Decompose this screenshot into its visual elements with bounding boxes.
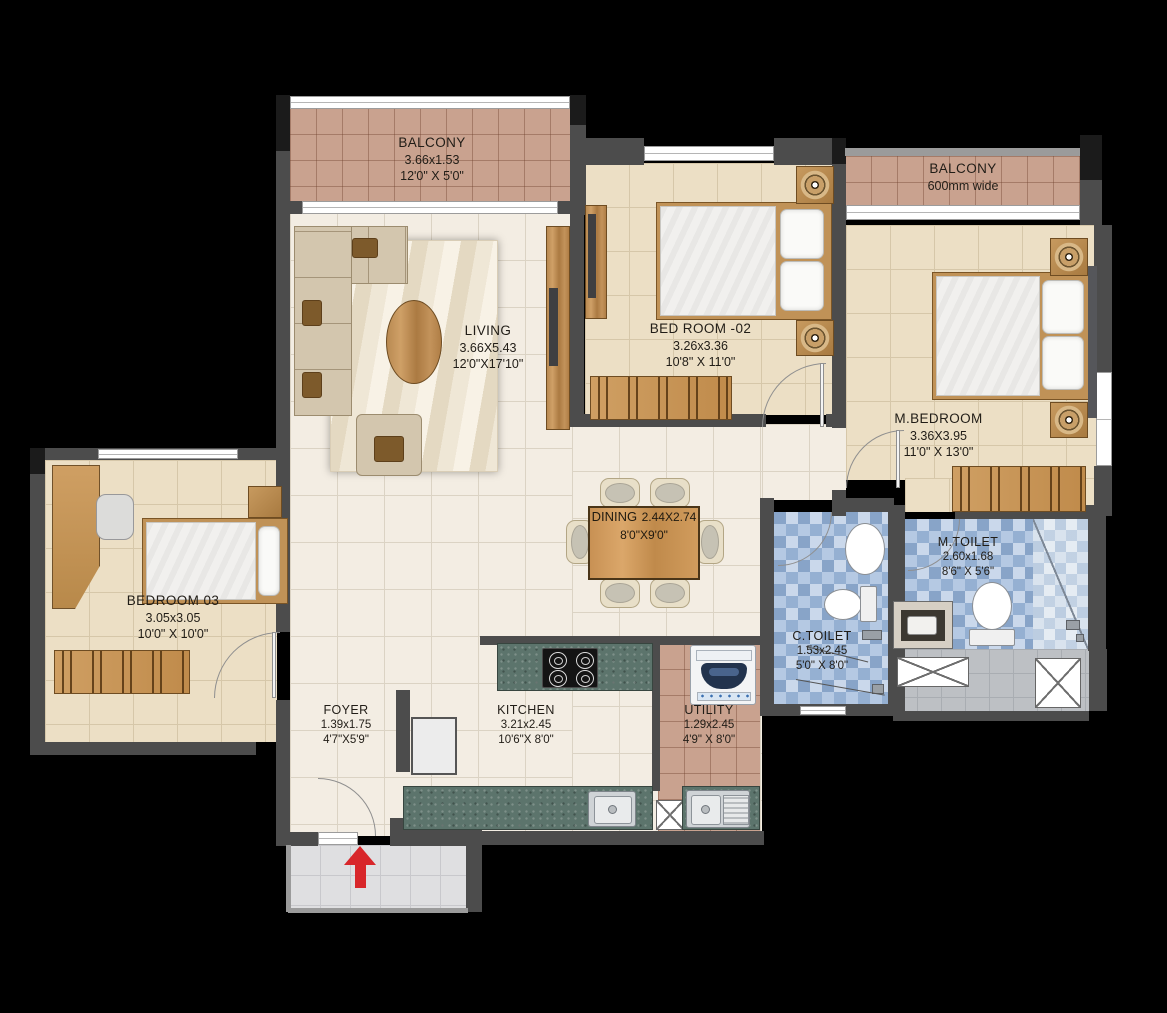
wall-segment [1080,180,1102,225]
sofa-cushion [302,300,322,326]
entry-arrow-head [344,846,376,865]
room-dim-ft: 12'0"X17'10" [398,356,578,372]
dining-table: DINING 2.44X2.74 8'0"X9'0" [588,506,700,580]
room-dim-ft: 10'8" X 11'0" [598,354,803,370]
room-dim-m: 3.26x3.36 [598,338,803,354]
balcony-top-right-label: BALCONY 600mm wide [858,160,1068,194]
dining-chair [650,578,690,608]
wardrobe-master [952,466,1086,512]
table-lamp [1051,239,1087,275]
wall-segment [1088,505,1106,651]
water-closet-tank [860,586,877,622]
room-name: KITCHEN [452,702,600,718]
wall-segment [276,213,290,460]
dining-dim-m: 2.44X2.74 [642,510,697,524]
wall-segment [832,138,846,164]
bed-pillow [780,261,824,311]
room-name: BALCONY [858,160,1068,178]
balcony-top-left-label: BALCONY 3.66x1.53 12'0" X 5'0" [332,134,532,184]
bed-duvet [936,276,1040,396]
room-dim-m: 1.53x2.45 [766,644,878,659]
room-dim-ft: 5'0" X 8'0" [766,659,878,674]
room-dim-ft: 8'6" X 5'6" [903,565,1033,580]
kitchen-label: KITCHEN 3.21x2.45 10'6"X 8'0" [452,702,600,748]
burner [576,652,594,669]
wall-segment [760,498,774,716]
wardrobe-bedroom-02 [590,376,732,420]
wall-segment [1089,649,1107,711]
bed-pillow [780,209,824,259]
nightstand [796,166,834,204]
wall-segment [570,164,584,414]
service-shaft [1035,658,1081,708]
entrance-landing-floor [290,845,466,911]
washer-panel [696,650,752,661]
wall-segment [30,474,45,744]
nightstand [248,486,282,518]
room-dim-ft: 4'9" X 8'0" [654,733,764,748]
wall-segment [834,498,894,512]
wall-segment [893,711,1089,721]
room-name: FOYER [294,702,398,718]
room-dim-m: 3.36X3.95 [836,428,1041,444]
wall-segment [276,700,290,836]
room-name: BEDROOM 03 [68,592,278,610]
room-name: BED ROOM -02 [598,320,803,338]
common-toilet-label: C.TOILET 1.53x2.45 5'0" X 8'0" [766,628,878,674]
entry-arrow-body [355,865,366,888]
dining-chair [600,578,640,608]
room-dim-ft: 4'7"X5'9" [294,733,398,748]
wash-basin [845,523,885,575]
service-shaft [897,657,969,687]
bedroom-03-window [98,449,238,459]
room-dim-ft: 12'0" X 5'0" [332,168,532,184]
shower-drain [1076,634,1084,642]
burner [549,670,567,687]
room-dim-m: 3.21x2.45 [452,718,600,733]
bed-pillow [1042,336,1084,390]
bed-pillow [258,526,280,596]
sofa-cushion [352,238,378,258]
master-toilet-label: M.TOILET 2.60x1.68 8'6" X 5'6" [903,534,1033,580]
wall-segment [570,95,586,125]
armchair-cushion [374,436,404,462]
sink-drain [701,805,710,814]
bedroom-02-window [644,146,774,161]
bedroom-02-door-leaf [820,363,824,427]
dining-chair [600,478,640,508]
master-bedroom-balcony-slider [846,205,1080,220]
vanity-sink [907,616,937,635]
dining-label: DINING [592,509,638,524]
room-dim-m: 3.66X5.43 [398,340,578,356]
tv-bedroom-02 [588,214,596,298]
room-dim-m: 2.60x1.68 [903,550,1033,565]
room-name: C.TOILET [766,628,878,644]
dining-dim-ft: 8'0"X9'0" [620,528,668,542]
room-name: BALCONY [332,134,532,152]
washer-door-glass [709,668,739,676]
service-shaft [656,800,684,830]
wall-segment [286,845,291,912]
table-lamp [1051,403,1087,437]
wall-segment [288,201,302,214]
bedroom-02-label: BED ROOM -02 3.26x3.36 10'8" X 11'0" [598,320,803,370]
sink-drain [608,805,617,814]
kitchen-hob [542,648,598,688]
utility-label: UTILITY 1.29x2.45 4'9" X 8'0" [654,702,764,748]
room-dim-m: 1.39x1.75 [294,718,398,733]
burner [549,652,567,669]
balcony-railing [845,148,1083,156]
room-name: M.TOILET [903,534,1033,550]
washer-door [701,663,747,689]
wardrobe-bedroom-03 [54,650,190,694]
dining-chair [696,520,724,564]
wall-segment [832,138,846,428]
washing-machine [690,645,756,705]
bedroom-03-label: BEDROOM 03 3.05x3.05 10'0" X 10'0" [68,592,278,642]
water-closet-bowl [972,582,1012,630]
living-balcony-slider [302,201,558,214]
room-dim-ft: 11'0" X 13'0" [836,444,1041,460]
washer-controls [697,692,751,701]
bed-duvet [146,522,256,600]
wall-segment [288,908,468,913]
wall-segment [576,138,644,165]
foyer-pillar [396,690,410,772]
headboard-panel [1088,266,1097,418]
dining-chair [650,478,690,508]
wall-segment [276,95,290,151]
foyer-label: FOYER 1.39x1.75 4'7"X5'9" [294,702,398,748]
nightstand [1050,238,1088,276]
wall-segment [30,448,45,474]
balcony-window [290,96,570,109]
wall-segment [466,845,482,912]
kitchen-sink [588,791,636,827]
nightstand [1050,402,1088,438]
room-name: LIVING [398,322,578,340]
bed-duvet [660,206,776,316]
room-name: UTILITY [654,702,764,718]
wall-segment [276,832,318,846]
shoe-cabinet [411,717,457,775]
corridor-floor [762,424,846,500]
entry-arrow-icon [344,846,376,890]
drainboard [723,795,749,825]
room-dim-ft: 10'6"X 8'0" [452,733,600,748]
wall-segment [30,742,256,755]
wall-segment [400,831,764,845]
wall-segment [1080,135,1102,180]
water-closet-base [969,629,1015,646]
wall-segment [774,138,834,165]
utility-sink [686,790,750,828]
room-name: M.BEDROOM [836,410,1041,428]
master-bedroom-window [1096,372,1112,466]
room-dim-m: 3.05x3.05 [68,610,278,626]
water-closet-bowl [824,589,862,620]
vanity-counter [893,601,953,649]
bed-pillow [1042,280,1084,334]
desk-chair [96,494,134,540]
master-bedroom-label: M.BEDROOM 3.36X3.95 11'0" X 13'0" [836,410,1041,460]
floor-plan: DINING 2.44X2.74 8'0"X9'0" [0,0,1167,1013]
room-dim-m: 3.66x1.53 [332,152,532,168]
living-label: LIVING 3.66X5.43 12'0"X17'10" [398,322,578,372]
burner [576,670,594,687]
shower-mixer [1066,620,1080,630]
room-dim-note: 600mm wide [858,178,1068,194]
sofa-cushion [302,372,322,398]
table-lamp [797,167,833,203]
room-dim-m: 1.29x2.45 [654,718,764,733]
toilet-threshold [800,706,846,715]
room-dim-ft: 10'0" X 10'0" [68,626,278,642]
